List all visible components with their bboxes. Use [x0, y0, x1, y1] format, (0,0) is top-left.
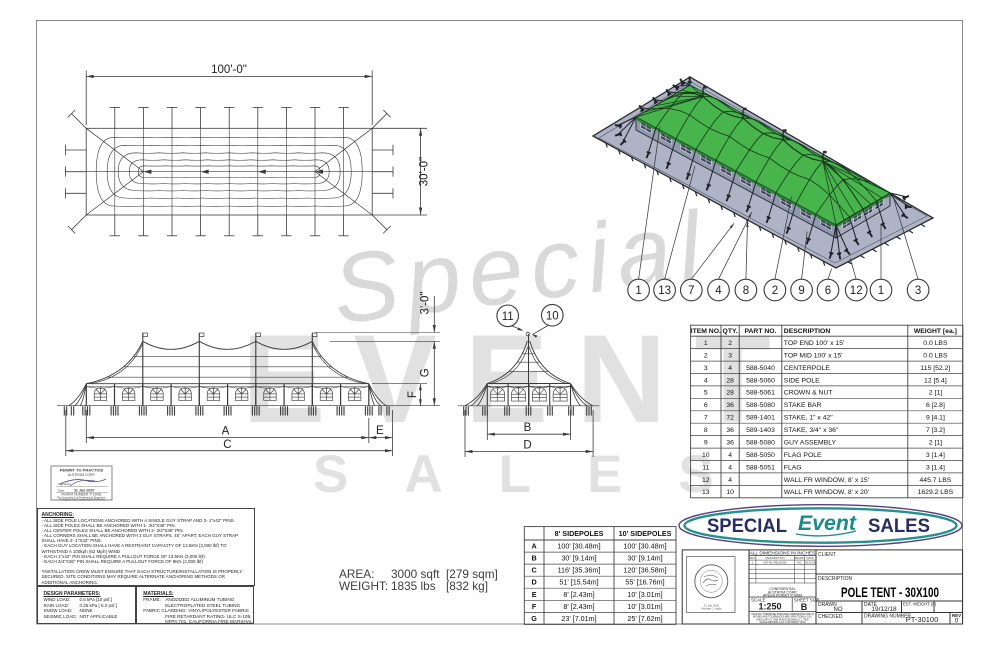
svg-text:115 [52.2]: 115 [52.2] [921, 365, 951, 372]
svg-text:72: 72 [726, 415, 734, 422]
svg-text:C: C [223, 439, 231, 451]
svg-text:TOP MID 100' x 15': TOP MID 100' x 15' [784, 353, 843, 360]
svg-text:19/12/18: 19/12/18 [871, 606, 897, 613]
svg-text:589-1403: 589-1403 [746, 427, 775, 434]
svg-text:3 [1.4]: 3 [1.4] [926, 452, 945, 459]
svg-text:28: 28 [726, 377, 734, 384]
svg-text:SALES: SALES [868, 516, 930, 537]
svg-text:TOP END 100' x 15': TOP END 100' x 15' [784, 340, 845, 347]
svg-text:CHECKED: CHECKED [818, 614, 843, 620]
svg-text:588-5040: 588-5040 [746, 365, 775, 372]
svg-text:10: 10 [726, 489, 734, 496]
svg-text:CENTERPOLE: CENTERPOLE [784, 365, 831, 372]
svg-text:4: 4 [728, 464, 732, 471]
svg-text:DRAWING NUMBER: DRAWING NUMBER [864, 614, 911, 620]
svg-text:PART NO.: PART NO. [745, 328, 777, 335]
svg-text:12 [5.4]: 12 [5.4] [924, 377, 947, 384]
svg-text:F: F [407, 391, 419, 398]
svg-text:WALL FR WINDOW, 8' x 20': WALL FR WINDOW, 8' x 20' [784, 489, 869, 496]
svg-text:13: 13 [702, 489, 710, 496]
svg-text:588-5050: 588-5050 [746, 452, 775, 459]
svg-text:ITEM NO.: ITEM NO. [691, 328, 721, 335]
svg-text:55' [16.76m]: 55' [16.76m] [625, 578, 664, 587]
svg-text:SIDE POLE: SIDE POLE [784, 377, 820, 384]
svg-text:116' [35.36m]: 116' [35.36m] [558, 566, 601, 575]
svg-text:10: 10 [702, 452, 710, 459]
svg-text:Event: Event [798, 512, 857, 535]
svg-text:1835 lbs: 1835 lbs [391, 579, 436, 593]
svg-text:DESCRIPTION: DESCRIPTION [818, 576, 853, 582]
svg-text:36: 36 [726, 440, 734, 447]
svg-text:8: 8 [743, 285, 749, 297]
svg-text:0.0 LBS: 0.0 LBS [923, 340, 948, 347]
svg-text:1629.2 LBS: 1629.2 LBS [918, 489, 954, 496]
svg-text:QTY.: QTY. [723, 328, 738, 335]
svg-text:ALSTROM CORP.: ALSTROM CORP. [68, 473, 96, 477]
svg-text:8' SIDEPOLES: 8' SIDEPOLES [555, 529, 604, 538]
svg-text:0: 0 [955, 618, 959, 625]
svg-text:2: 2 [772, 285, 778, 297]
svg-text:7 [3.2]: 7 [3.2] [926, 427, 945, 434]
svg-text:588-5080: 588-5080 [746, 440, 775, 447]
svg-text:3: 3 [915, 285, 921, 297]
svg-text:120' [36.58m]: 120' [36.58m] [623, 566, 666, 575]
svg-text:100' [30.48m]: 100' [30.48m] [557, 542, 600, 551]
svg-text:Michael J. Inglis: Michael J. Inglis [702, 607, 722, 611]
svg-text:A: A [531, 542, 536, 551]
svg-text:CROWN & NUT: CROWN & NUT [784, 390, 833, 397]
svg-text:589-1401: 589-1401 [746, 415, 775, 422]
svg-text:PT-30100: PT-30100 [906, 615, 939, 624]
svg-text:DATE: DATE [806, 556, 813, 560]
svg-text:10: 10 [546, 310, 559, 322]
svg-text:2: 2 [728, 340, 732, 347]
svg-text:STAKE, 1" x 42": STAKE, 1" x 42" [784, 415, 833, 422]
svg-text:3'-0": 3'-0" [420, 292, 432, 315]
svg-text:1: 1 [752, 561, 754, 565]
svg-text:DRAWN: DRAWN [794, 556, 804, 560]
svg-text:NO: NO [797, 561, 802, 565]
svg-text:9: 9 [704, 440, 708, 447]
svg-text:19/12/18: 19/12/18 [805, 561, 816, 565]
svg-text:E: E [532, 590, 537, 599]
svg-text:3 [1.4]: 3 [1.4] [926, 464, 945, 471]
svg-text:30'-0": 30'-0" [419, 157, 431, 186]
svg-text:Signature: Signature [58, 482, 71, 486]
svg-text:A: A [222, 425, 230, 437]
svg-text:EST. WEIGHT (#): EST. WEIGHT (#) [903, 602, 937, 607]
svg-text:POLE TENT - 30X100: POLE TENT - 30X100 [841, 584, 939, 600]
svg-text:588-5060: 588-5060 [746, 377, 775, 384]
svg-text:G: G [531, 614, 537, 623]
svg-text:100' [30.48m]: 100' [30.48m] [623, 542, 666, 551]
svg-text:WALL FR WINDOW, 8' x 15': WALL FR WINDOW, 8' x 15' [784, 477, 869, 484]
svg-text:0.0 LBS: 0.0 LBS [923, 353, 948, 360]
svg-text:1: 1 [878, 285, 884, 297]
svg-text:WEIGHT:: WEIGHT: [339, 579, 388, 593]
svg-text:Geologists and Geophysicists o: Geologists and Geophysicists of Alberta [59, 498, 105, 502]
svg-text:D: D [523, 439, 531, 451]
svg-text:3: 3 [728, 353, 732, 360]
svg-text:WEIGHT [ea.]: WEIGHT [ea.] [914, 328, 957, 335]
svg-text:REV: REV [750, 556, 756, 560]
svg-text:4: 4 [728, 365, 732, 372]
svg-text:588-5051: 588-5051 [746, 464, 775, 471]
svg-text:9: 9 [798, 285, 804, 297]
svg-text:4: 4 [728, 452, 732, 459]
svg-text:8: 8 [704, 427, 708, 434]
svg-text:DESCRIPTION: DESCRIPTION [784, 328, 831, 335]
svg-text:GUY ASSEMBLY: GUY ASSEMBLY [784, 440, 837, 447]
svg-text:9 [4.1]: 9 [4.1] [926, 415, 945, 422]
svg-text:6 [2.8]: 6 [2.8] [926, 402, 945, 409]
svg-text:11: 11 [702, 464, 709, 471]
svg-text:B: B [801, 602, 808, 612]
svg-text:B: B [531, 554, 536, 563]
svg-text:11: 11 [502, 311, 514, 323]
svg-text:1: 1 [704, 340, 708, 347]
svg-text:23' [7.01m]: 23' [7.01m] [561, 614, 596, 623]
svg-text:PLACE DECIMAL 0.01. COPYRIGHT: PLACE DECIMAL 0.01. COPYRIGHT 2018 [760, 621, 807, 624]
svg-text:445.7 LBS: 445.7 LBS [920, 477, 952, 484]
svg-text:STAKE, 3/4" x 36": STAKE, 3/4" x 36" [784, 427, 839, 434]
svg-text:36: 36 [726, 427, 734, 434]
svg-text:4: 4 [728, 477, 732, 484]
svg-text:4: 4 [715, 285, 722, 297]
svg-text:6: 6 [825, 285, 831, 297]
svg-text:10' [3.01m]: 10' [3.01m] [627, 590, 662, 599]
svg-text:28: 28 [726, 390, 734, 397]
svg-text:7: 7 [688, 285, 694, 297]
svg-text:100'-0": 100'-0" [211, 64, 247, 76]
svg-text:STAKE BAR: STAKE BAR [784, 402, 822, 409]
svg-text:2 [1]: 2 [1] [929, 390, 942, 397]
svg-text:8' [2.43m]: 8' [2.43m] [563, 590, 594, 599]
svg-text:1: 1 [635, 285, 641, 297]
svg-text:NO: NO [834, 607, 843, 613]
svg-text:12: 12 [850, 285, 863, 297]
svg-text:8' [2.43m]: 8' [2.43m] [563, 602, 594, 611]
svg-text:D: D [531, 578, 536, 587]
svg-text:6: 6 [704, 402, 708, 409]
svg-text:36: 36 [726, 402, 734, 409]
svg-text:10' SIDEPOLES: 10' SIDEPOLES [619, 529, 672, 538]
svg-text:PERMIT TO PRACTICE: PERMIT TO PRACTICE [60, 468, 104, 473]
svg-text:SPECIAL: SPECIAL [707, 516, 787, 537]
svg-text:G: G [420, 368, 432, 377]
svg-text:588-5061: 588-5061 [746, 390, 775, 397]
svg-text:2: 2 [704, 353, 708, 360]
svg-text:51' [15.54m]: 51' [15.54m] [559, 578, 598, 587]
svg-text:FLAG: FLAG [784, 464, 802, 471]
svg-text:E: E [376, 425, 384, 437]
svg-text:4: 4 [704, 377, 708, 384]
svg-text:5: 5 [704, 390, 708, 397]
svg-text:25' [7.62m]: 25' [7.62m] [627, 614, 662, 623]
svg-text:INITIAL RELEASE: INITIAL RELEASE [763, 561, 786, 565]
svg-text:30' [9.14m]: 30' [9.14m] [627, 554, 662, 563]
svg-text:7: 7 [704, 415, 708, 422]
svg-text:30' [9.14m]: 30' [9.14m] [561, 554, 596, 563]
svg-text:CLIENT: CLIENT [818, 552, 836, 558]
svg-text:F: F [532, 602, 537, 611]
svg-text:1:250: 1:250 [758, 602, 781, 612]
svg-text:DESCRIPTION: DESCRIPTION [765, 556, 784, 560]
svg-text:[832 kg]: [832 kg] [446, 579, 488, 593]
svg-text:2 [1]: 2 [1] [929, 440, 942, 447]
svg-text:C: C [531, 566, 536, 575]
svg-text:3: 3 [704, 365, 708, 372]
svg-text:12: 12 [702, 477, 710, 484]
svg-text:FLAG POLE: FLAG POLE [784, 452, 822, 459]
svg-text:B: B [524, 422, 532, 434]
svg-text:588-5080: 588-5080 [746, 402, 775, 409]
svg-text:13: 13 [658, 285, 671, 297]
svg-text:10' [3.01m]: 10' [3.01m] [627, 602, 662, 611]
